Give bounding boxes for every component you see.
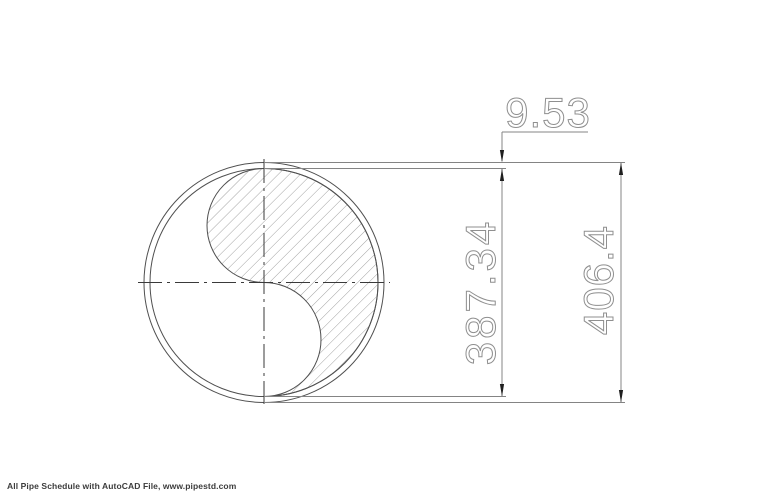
pipe-section-drawing: 9.53 387.34 406.4	[0, 0, 768, 497]
arrow-outer-diameter-top	[619, 163, 623, 176]
arrow-outer-diameter-bottom	[619, 390, 623, 403]
dimension-text-outer-diameter: 406.4	[575, 225, 622, 335]
drawing-canvas: 9.53 387.34 406.4 All Pipe Schedule with…	[0, 0, 768, 497]
arrow-wall-thickness-down	[500, 150, 504, 163]
arrow-inner-diameter-top	[500, 169, 504, 182]
footer-credit: All Pipe Schedule with AutoCAD File, www…	[7, 481, 236, 491]
arrow-inner-diameter-bottom	[500, 384, 504, 397]
dimension-text-wall-thickness: 9.53	[505, 89, 591, 136]
dimension-text-inner-diameter: 387.34	[457, 219, 504, 365]
